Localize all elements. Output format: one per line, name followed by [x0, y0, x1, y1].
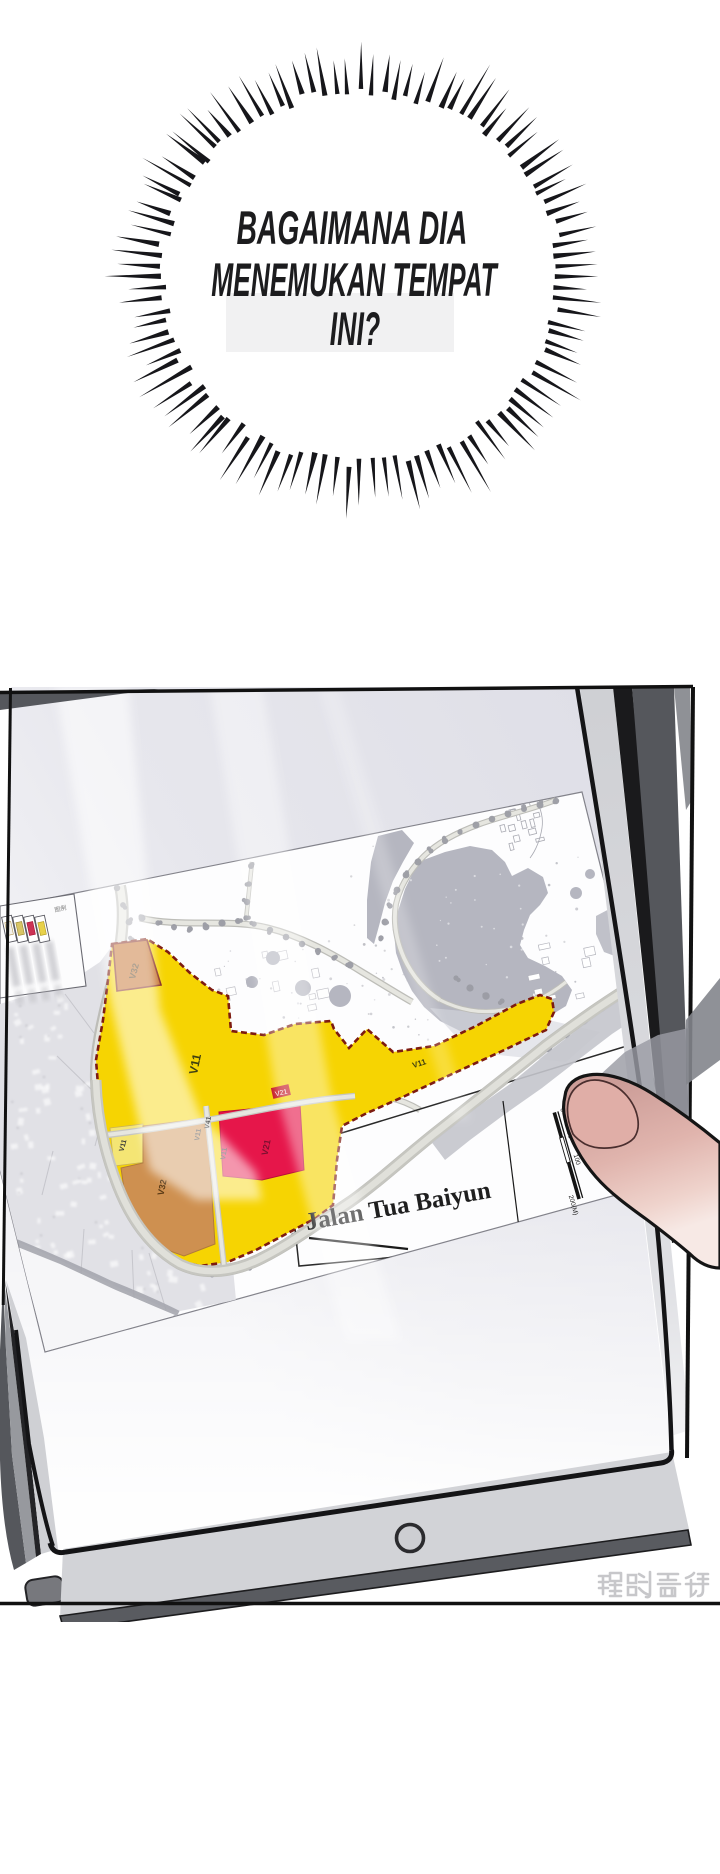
svg-text:INI?: INI?	[330, 303, 381, 356]
svg-text:BAGAIMANA DIA: BAGAIMANA DIA	[237, 203, 468, 255]
svg-text:MENEMUKAN TEMPAT: MENEMUKAN TEMPAT	[211, 255, 498, 307]
